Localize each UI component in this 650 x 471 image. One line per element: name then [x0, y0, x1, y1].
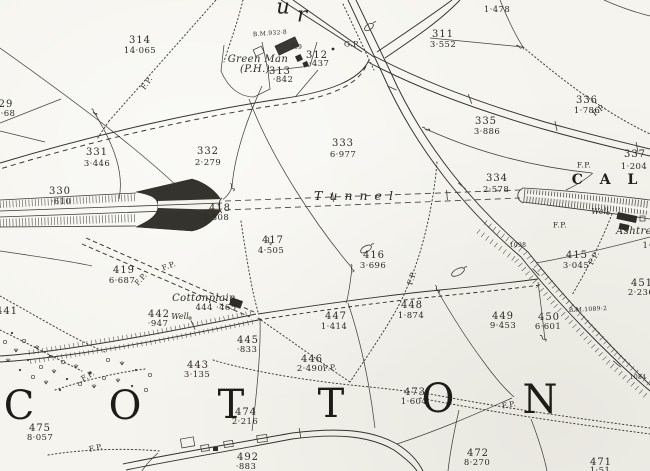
cutting-hatching [0, 194, 650, 397]
building [295, 54, 303, 62]
gate-and-mere-marks [91, 45, 638, 438]
tunnel-dashed-alignment [225, 190, 520, 210]
road-junction-dot [332, 48, 335, 51]
ashtree-farm-building [616, 212, 637, 223]
pit-pond [450, 266, 465, 278]
hamlet-building [213, 447, 218, 451]
map-canvas [0, 0, 650, 471]
well-marker [189, 317, 191, 319]
hamlet-building [180, 437, 194, 448]
green-man-pub-building [275, 37, 299, 55]
map-viewport: ur1·4783113·55231414·065B.M.932·8Green M… [0, 0, 650, 471]
pit-pond [359, 243, 372, 254]
ashtree-farm-building [618, 223, 629, 231]
buildings-and-features [180, 22, 645, 452]
cottonplain-building [229, 297, 243, 309]
footpath-dotted-lines [0, 0, 650, 455]
outbuilding [253, 46, 264, 56]
